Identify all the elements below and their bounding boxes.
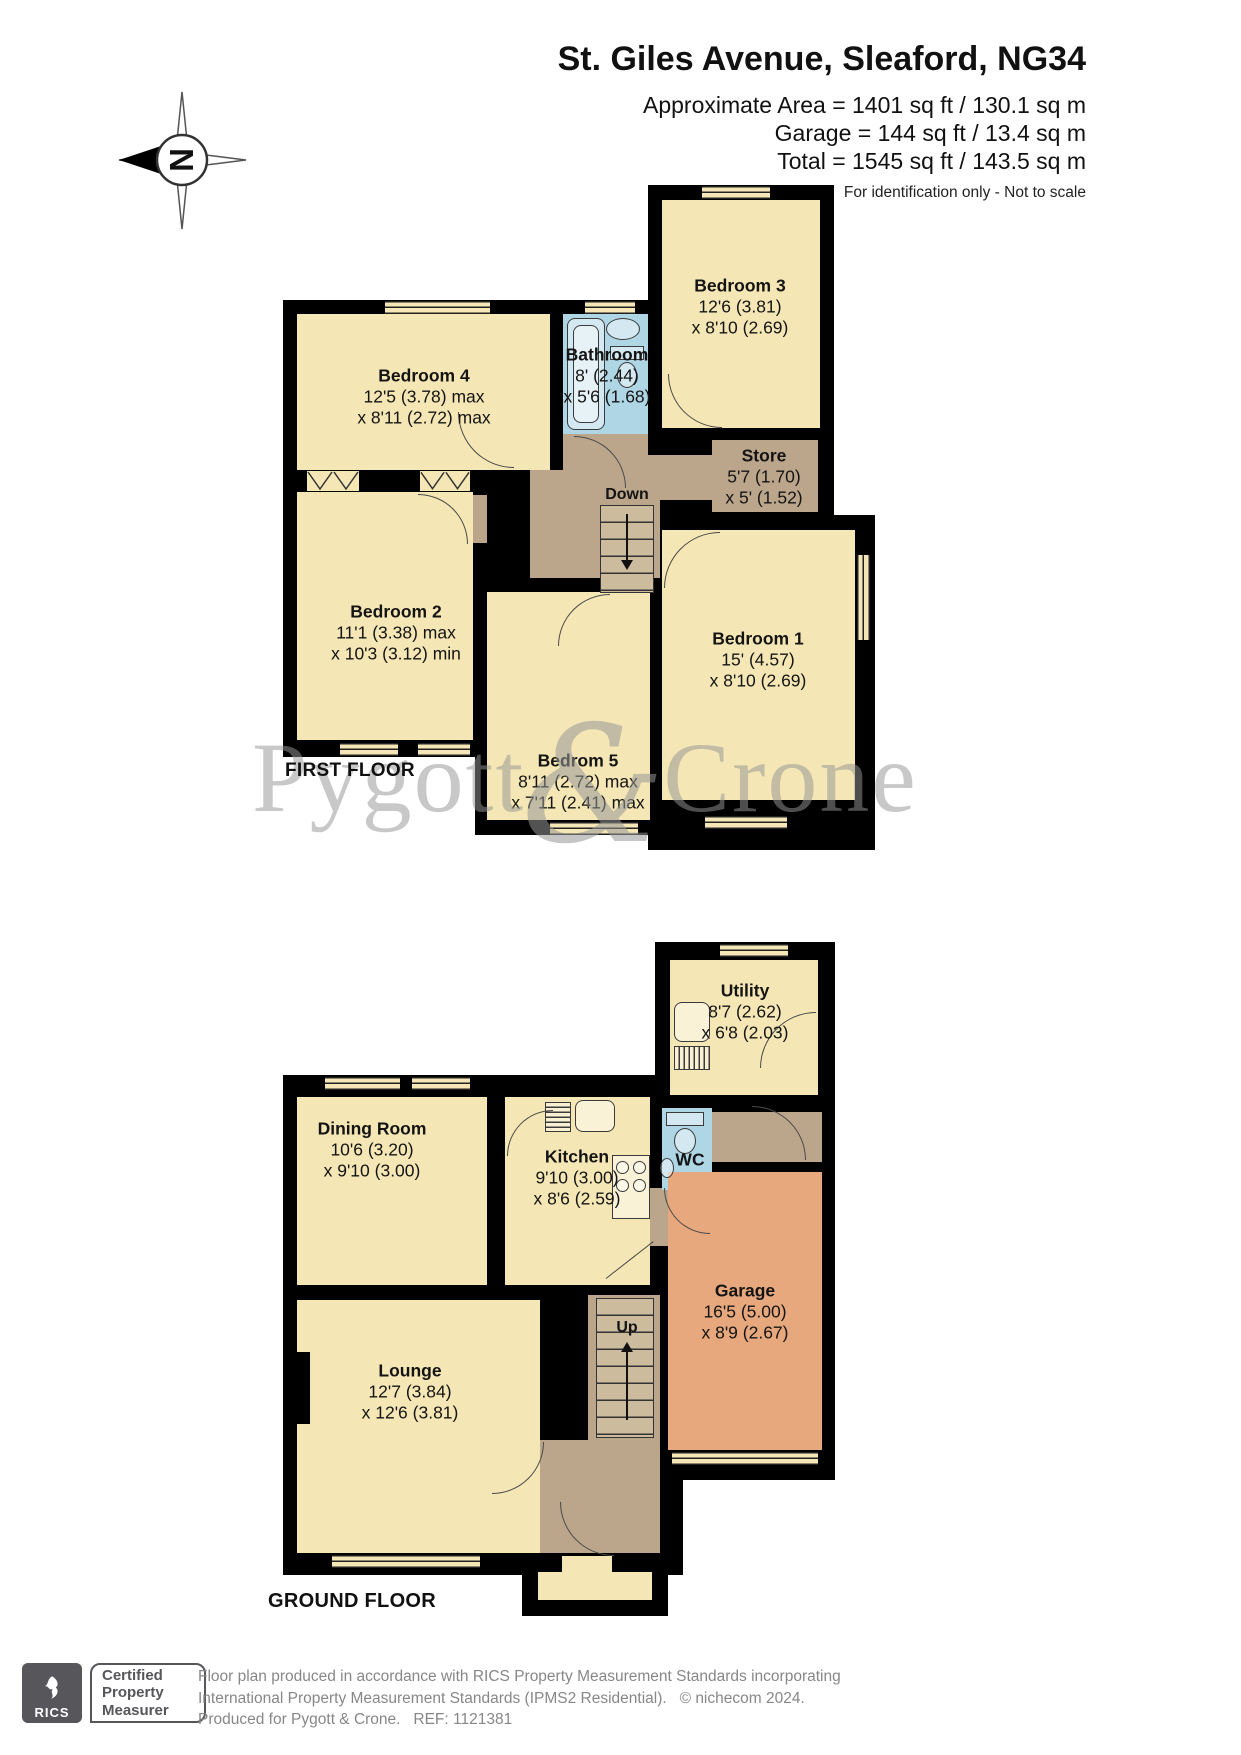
up-arrow-icon bbox=[626, 1352, 628, 1420]
room-lounge bbox=[297, 1300, 540, 1553]
footer-disclaimer: Floor plan produced in accordance with R… bbox=[198, 1666, 841, 1731]
label-garage: Garage 16'5 (5.00) x 8'9 (2.67) bbox=[702, 1281, 789, 1344]
window bbox=[857, 555, 870, 640]
utility-drainer-icon bbox=[674, 1046, 710, 1070]
total-area-line: Total = 1545 sq ft / 143.5 sq m bbox=[558, 147, 1086, 175]
label-bedroom1: Bedroom 1 15' (4.57) x 8'10 (2.69) bbox=[710, 629, 807, 692]
label-store: Store 5'7 (1.70) x 5' (1.52) bbox=[725, 446, 802, 509]
rics-text: RICS bbox=[34, 1705, 69, 1720]
front-door-opening bbox=[562, 1556, 612, 1573]
garage-area-line: Garage = 144 sq ft / 13.4 sq m bbox=[558, 119, 1086, 147]
label-lounge: Lounge 12'7 (3.84) x 12'6 (3.81) bbox=[362, 1361, 459, 1424]
rics-logo: RICS bbox=[22, 1663, 82, 1723]
label-kitchen: Kitchen 9'10 (3.00) x 8'6 (2.59) bbox=[534, 1147, 621, 1210]
label-dining: Dining Room 10'6 (3.20) x 9'10 (3.00) bbox=[318, 1119, 427, 1182]
label-bedroom2: Bedroom 2 11'1 (3.38) max x 10'3 (3.12) … bbox=[331, 602, 461, 665]
label-wc: WC bbox=[675, 1150, 704, 1171]
garage-door-opening bbox=[672, 1452, 818, 1465]
label-bathroom: Bathroom 8' (2.44) x 5'6 (1.68) bbox=[564, 345, 651, 408]
footer-line-3: Produced for Pygott & Crone. REF: 112138… bbox=[198, 1709, 841, 1731]
label-utility: Utility 8'7 (2.62) x 6'8 (2.03) bbox=[702, 981, 789, 1044]
kitchen-sink-icon bbox=[575, 1100, 615, 1132]
lounge-chimney bbox=[290, 1352, 310, 1424]
hob-burner bbox=[633, 1161, 646, 1174]
watermark-ampersand-icon: & bbox=[521, 692, 667, 880]
watermark: Pygott&Crone bbox=[252, 692, 918, 880]
footer-line-2: International Property Measurement Stand… bbox=[198, 1688, 841, 1710]
label-stairs-up: Up bbox=[616, 1319, 637, 1337]
window bbox=[412, 1077, 470, 1090]
casement-window bbox=[420, 471, 470, 491]
floorplan-page: St. Giles Avenue, Sleaford, NG34 Approxi… bbox=[0, 0, 1241, 1755]
ff-landing-strip bbox=[473, 495, 487, 543]
first-floor-title: FIRST FLOOR bbox=[285, 760, 415, 782]
basin-icon bbox=[606, 318, 640, 340]
gf-porch-inset bbox=[538, 1572, 652, 1600]
up-arrowhead-icon bbox=[621, 1342, 633, 1352]
certified-property-measurer-badge: Certified Property Measurer bbox=[90, 1663, 206, 1723]
approximate-area-line: Approximate Area = 1401 sq ft / 130.1 sq… bbox=[558, 91, 1086, 119]
casement-window bbox=[307, 471, 359, 491]
down-arrowhead-icon bbox=[621, 560, 633, 570]
header: St. Giles Avenue, Sleaford, NG34 Approxi… bbox=[558, 40, 1086, 202]
down-arrow-icon bbox=[626, 514, 628, 562]
compass-rose-icon: N bbox=[115, 88, 250, 238]
wc-basin-icon bbox=[660, 1158, 674, 1178]
page-title: St. Giles Avenue, Sleaford, NG34 bbox=[558, 40, 1086, 78]
compass-north-letter: N bbox=[163, 148, 200, 172]
label-bedroom4: Bedroom 4 12'5 (3.78) max x 8'11 (2.72) … bbox=[357, 366, 490, 429]
ff-store-opening bbox=[648, 455, 712, 500]
window bbox=[720, 944, 788, 957]
hob-burner bbox=[633, 1179, 646, 1192]
scale-disclaimer: For identification only - Not to scale bbox=[558, 184, 1086, 202]
window bbox=[385, 301, 490, 314]
footer-line-1: Floor plan produced in accordance with R… bbox=[198, 1666, 841, 1688]
window bbox=[585, 301, 635, 314]
watermark-right: Crone bbox=[663, 722, 917, 833]
window bbox=[325, 1077, 400, 1090]
label-stairs-down: Down bbox=[605, 486, 649, 504]
rics-lion-icon bbox=[37, 1673, 67, 1705]
wc-cistern-icon bbox=[666, 1112, 704, 1126]
label-bedroom3: Bedroom 3 12'6 (3.81) x 8'10 (2.69) bbox=[692, 276, 789, 339]
window bbox=[332, 1555, 480, 1568]
ground-floor-title: GROUND FLOOR bbox=[268, 1590, 436, 1613]
